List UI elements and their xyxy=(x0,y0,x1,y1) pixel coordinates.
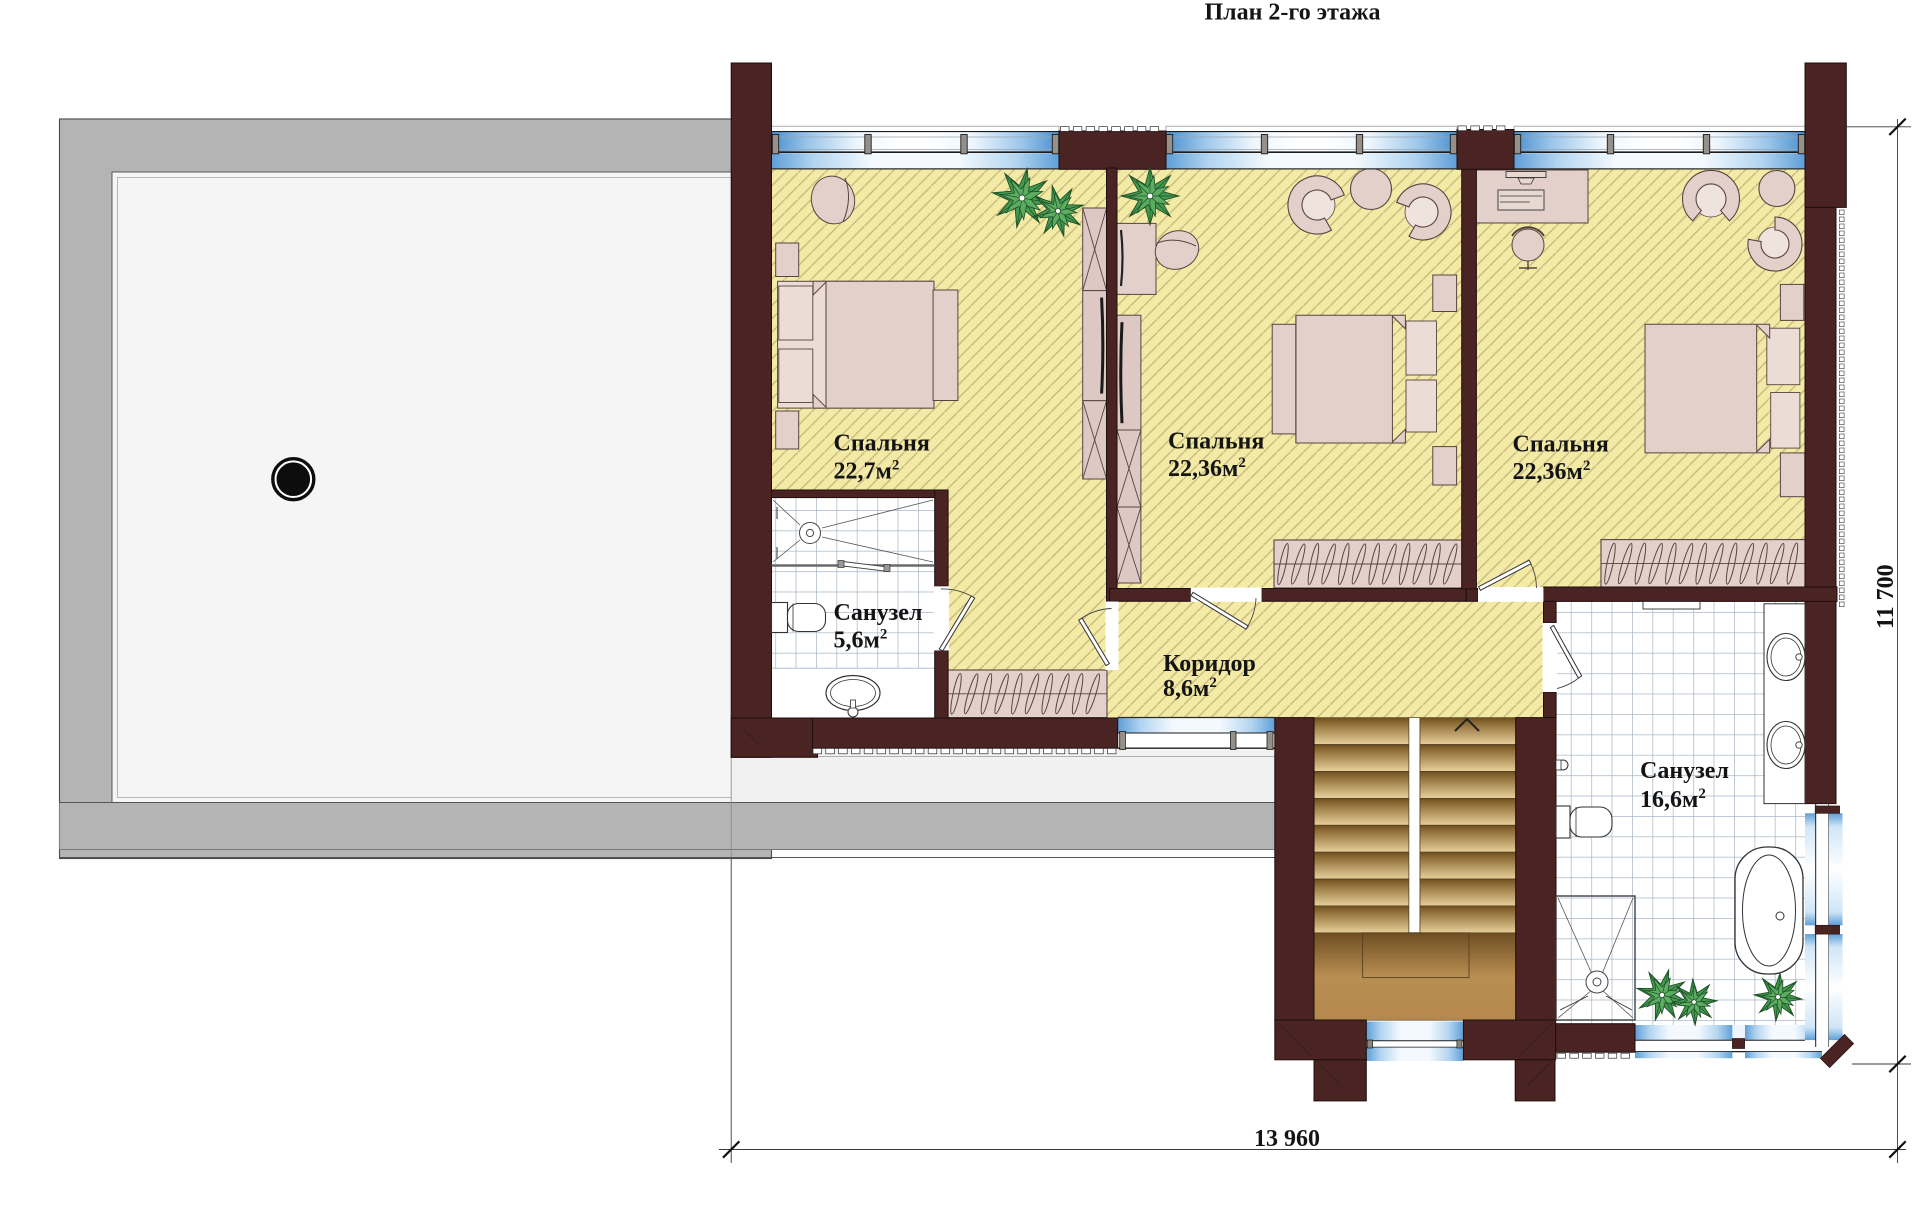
svg-text:22,36м2: 22,36м2 xyxy=(1513,458,1591,485)
svg-text:11 700: 11 700 xyxy=(1873,564,1899,629)
svg-text:Санузел: Санузел xyxy=(834,600,923,626)
svg-text:22,7м2: 22,7м2 xyxy=(834,458,900,485)
svg-text:Санузел: Санузел xyxy=(1640,758,1729,784)
svg-text:8,6м2: 8,6м2 xyxy=(1163,675,1217,702)
svg-text:16,6м2: 16,6м2 xyxy=(1640,786,1706,813)
svg-text:План 2-го этажа: План 2-го этажа xyxy=(1204,0,1380,26)
svg-text:13 960: 13 960 xyxy=(1254,1126,1320,1152)
svg-text:5,6м2: 5,6м2 xyxy=(834,627,888,654)
svg-text:22,36м2: 22,36м2 xyxy=(1168,455,1246,482)
svg-text:Спальня: Спальня xyxy=(1513,432,1609,458)
svg-text:Спальня: Спальня xyxy=(1168,429,1264,455)
svg-text:Спальня: Спальня xyxy=(834,431,930,457)
svg-text:Коридор: Коридор xyxy=(1163,651,1256,677)
